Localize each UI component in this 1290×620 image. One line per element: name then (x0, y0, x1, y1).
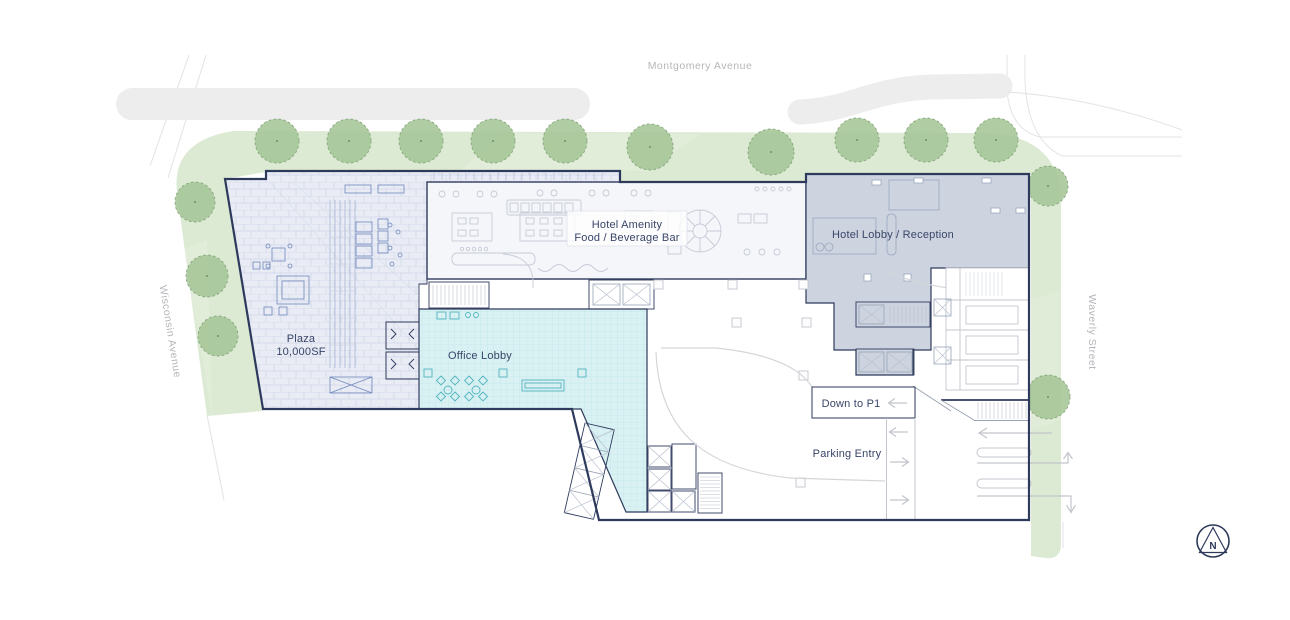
office-lobby-label: Office Lobby (448, 350, 512, 362)
north-label: N (1209, 541, 1216, 552)
street-label-montgomery: Montgomery Avenue (648, 60, 753, 72)
hotel-amenity-label-line2: Food / Beverage Bar (574, 232, 679, 244)
parking-entry-label: Parking Entry (813, 448, 882, 460)
street-label-wisconsin: Wisconsin Avenue (157, 284, 183, 378)
office-lobby-floor (419, 309, 647, 512)
street-label-waverly: Waverly Street (1086, 294, 1098, 369)
back-of-house-rooms (934, 268, 1029, 390)
site-plan-drawing: Montgomery Avenue Wisconsin Avenue Waver… (0, 0, 1290, 620)
hotel-amenity-label-line1: Hotel Amenity (592, 219, 663, 231)
median-strip-right (800, 86, 1000, 112)
office-lobby-area (419, 309, 647, 512)
north-arrow-icon: N (1197, 525, 1229, 557)
median-strip-left (116, 88, 590, 120)
hotel-lobby-label: Hotel Lobby / Reception (832, 229, 954, 241)
plaza-label: Plaza (287, 333, 316, 345)
plaza-size-label: 10,000SF (276, 346, 325, 358)
site-plan-page: Montgomery Avenue Wisconsin Avenue Waver… (0, 0, 1290, 620)
down-to-p1-label: Down to P1 (822, 398, 881, 410)
